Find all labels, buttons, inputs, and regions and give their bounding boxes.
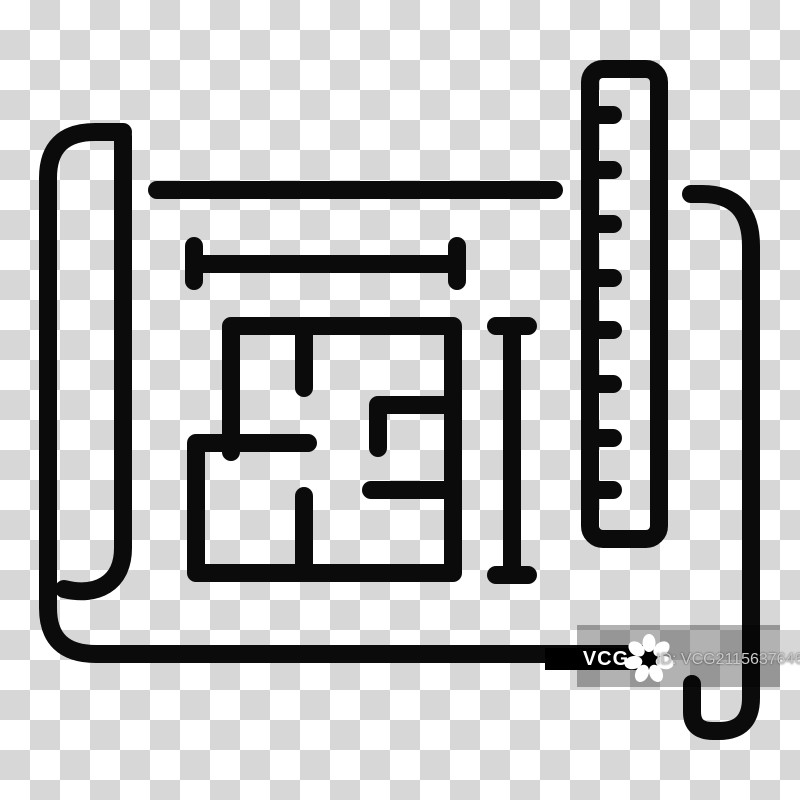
watermark-id-text: ID: VCG211563764681 — [656, 650, 800, 670]
vertical-measure-line — [496, 326, 528, 575]
horizontal-measure-line — [194, 246, 457, 281]
stock-image-canvas: VCG ID: VCG211563764681 — [0, 0, 800, 800]
floor-plan — [196, 326, 453, 573]
ruler — [590, 69, 659, 539]
